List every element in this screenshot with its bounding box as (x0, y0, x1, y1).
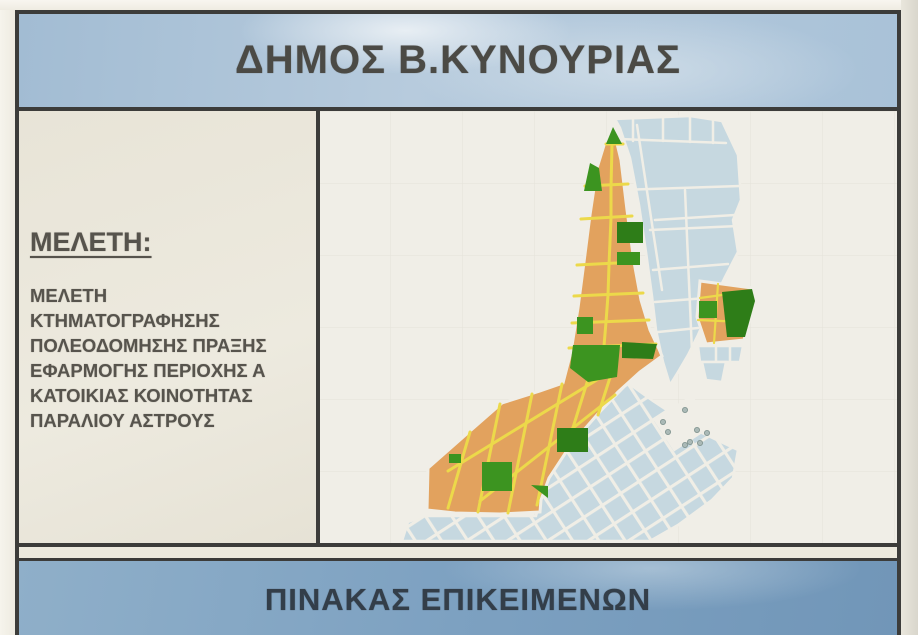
study-line: ΚΤΗΜΑΤΟΓΡΑΦΗΣΗΣ (30, 308, 267, 333)
map-canvas (318, 111, 898, 543)
frame-line-top (15, 10, 901, 14)
blue-parcels (698, 346, 743, 362)
study-heading: ΜΕΛΕΤΗ: (30, 227, 152, 258)
footer-title: ΠΙΝΑΚΑΣ ΕΠΙΚΕΙΜΕΝΩΝ (265, 582, 651, 618)
study-line: ΠΟΛΕΟΔΟΜΗΣΗΣ ΠΡΑΞΗΣ (30, 333, 267, 358)
poster-title: ΔΗΜΟΣ Β.ΚΥΝΟΥΡΙΑΣ (235, 38, 681, 83)
paper-edge-right (901, 0, 918, 635)
blue-tail (702, 362, 726, 382)
study-panel: ΜΕΛΕΤΗ: ΜΕΛΕΤΗ ΚΤΗΜΑΤΟΓΡΑΦΗΣΗΣ ΠΟΛΕΟΔΟΜΗ… (19, 111, 316, 543)
paper-edge-top (0, 0, 918, 10)
frame-line-right (897, 10, 901, 635)
poster-photo: ΔΗΜΟΣ Β.ΚΥΝΟΥΡΙΑΣ ΜΕΛΕΤΗ: ΜΕΛΕΤΗ ΚΤΗΜΑΤΟ… (0, 0, 918, 635)
study-line: ΠΑΡΑΛΙΟΥ ΑΣΤΡΟΥΣ (30, 408, 267, 433)
study-line: ΚΑΤΟΙΚΙΑΣ ΚΟΙΝΟΤΗΤΑΣ (30, 383, 267, 408)
frame-line-left (15, 10, 19, 635)
frame-line-content-bottom (15, 543, 901, 547)
green-parcel (699, 301, 717, 318)
frame-line-title-bottom (15, 107, 901, 111)
footer-band: ΠΙΝΑΚΑΣ ΕΠΙΚΕΙΜΕΝΩΝ (19, 561, 897, 635)
frame-line-vertical-divider (316, 111, 320, 543)
paper-edge-left (0, 0, 15, 635)
study-line: ΜΕΛΕΤΗ (30, 283, 267, 308)
urban-plan-map (320, 111, 898, 543)
study-line: ΕΦΑΡΜΟΓΗΣ ΠΕΡΙΟΧΗΣ Α (30, 358, 267, 383)
frame-line-footer-top (15, 558, 901, 561)
study-description: ΜΕΛΕΤΗ ΚΤΗΜΑΤΟΓΡΑΦΗΣΗΣ ΠΟΛΕΟΔΟΜΗΣΗΣ ΠΡΑΞ… (30, 283, 267, 433)
title-band: ΔΗΜΟΣ Β.ΚΥΝΟΥΡΙΑΣ (19, 14, 897, 107)
divider-gap (15, 547, 901, 558)
